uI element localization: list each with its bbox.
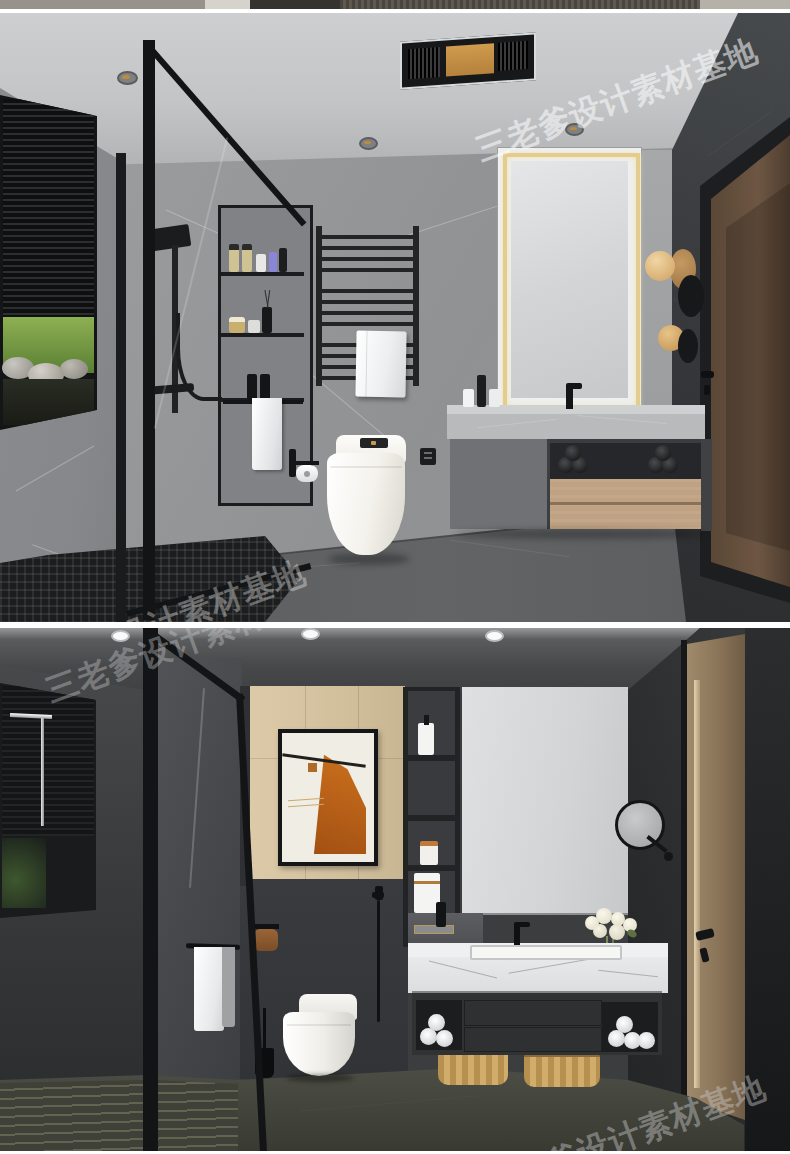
pump-top [424, 715, 429, 725]
vanity-counter [447, 405, 705, 441]
niche-shelf-board [221, 333, 304, 337]
radiator-bars [319, 289, 416, 333]
magnifying-mirror-mount [664, 852, 673, 861]
white-jar [248, 320, 260, 333]
violet-bottle [269, 252, 277, 272]
abstract-artwork [278, 729, 378, 866]
art-gold-line [288, 804, 324, 808]
art-orange-shape [282, 733, 366, 854]
sliver-dark-band [250, 0, 340, 9]
vanity-cabinet [412, 993, 662, 1055]
toilet-seat-seam [330, 466, 402, 468]
vanity-mirror [497, 147, 642, 412]
shower-glass-front-post [143, 628, 158, 1151]
door-pull-strip [694, 680, 700, 1088]
counter-soap-bottle [477, 375, 486, 407]
heater-grille [498, 41, 528, 71]
window-blinds [3, 99, 94, 323]
control-panel-light [371, 441, 376, 445]
sconce-black-plate-lower [678, 329, 698, 363]
towel-fold-line [365, 331, 367, 397]
black-bottle [279, 248, 287, 272]
rolled-towel [436, 1030, 453, 1047]
vanity-side-panel [701, 439, 712, 531]
sliver-grate [340, 0, 700, 9]
cabinet-left-niche [416, 1000, 462, 1050]
radiator-towel [355, 331, 406, 398]
window-rock [60, 359, 88, 379]
canister-copper-ring [414, 881, 440, 884]
toilet-control-panel [360, 438, 388, 448]
toilet-brush-handle [263, 1008, 266, 1050]
amber-bottle [242, 244, 252, 272]
flower-bouquet [585, 908, 643, 946]
shower-chrome-pipe [41, 718, 44, 826]
wicker-basket [524, 1054, 600, 1087]
amber-jar [420, 841, 438, 865]
vanity-shadow [455, 529, 705, 539]
sprayer-hose [377, 900, 380, 1022]
sink-basin [470, 945, 622, 960]
toilet-paper-roll [296, 465, 318, 482]
toilet-shadow [286, 1074, 354, 1082]
ledge-tray [414, 925, 454, 934]
drawer-seam [550, 502, 701, 505]
vanity-drawers [550, 479, 701, 529]
ledge-soap-bottle [436, 902, 446, 927]
reed-diffuser [262, 307, 272, 333]
downlight-bulb [364, 141, 371, 144]
downlight [485, 630, 504, 642]
socket-pin [424, 457, 432, 459]
vanity-cabinet-door [450, 439, 550, 529]
mirror-glass [511, 161, 628, 398]
door-inner-panel [726, 183, 790, 553]
art-gold-line [288, 798, 324, 802]
socket-pin [424, 452, 432, 454]
black-pump-bottle [260, 374, 270, 400]
basin-faucet-spout [514, 922, 530, 927]
rolled-towel [638, 1032, 655, 1049]
rolled-towel [428, 1014, 445, 1031]
wicker-basket [438, 1052, 508, 1085]
diffuser-stick [267, 290, 270, 308]
grate-grooves [0, 1080, 238, 1151]
downlight-bulb [122, 75, 130, 79]
sliver-cobble [700, 0, 790, 9]
flower-bloom [596, 908, 612, 924]
shower-floor-grate [0, 1080, 238, 1151]
black-pump-bottle [247, 374, 257, 400]
door-frame [681, 640, 687, 1096]
roll-core [304, 471, 310, 477]
window-green-view [2, 838, 46, 908]
toilet-seat-seam [287, 1024, 351, 1026]
art-copper-square [308, 763, 317, 772]
heater-lamp-panel [446, 43, 494, 76]
downlight [111, 630, 130, 642]
toilet-paper-roll [254, 929, 278, 951]
white-canister [256, 254, 266, 272]
render-top-bathroom: 三老爹设计素材基地 三老爹设计素材基地 [0, 13, 790, 622]
hanging-towel-shadow-fold [222, 947, 235, 1027]
shower-glass-front-post [143, 40, 155, 620]
shower-glass-rear-post [116, 153, 126, 622]
sconce-ball-light [645, 251, 675, 281]
basin-faucet [514, 924, 520, 945]
foreground-wall-edge [745, 628, 790, 1151]
sconce-black-plate [678, 275, 704, 317]
downlight [117, 71, 138, 85]
rolled-towel [616, 1016, 633, 1033]
vanity-open-niche [550, 439, 701, 479]
screenshot-canvas: 三老爹设计素材基地 三老爹设计素材基地 [0, 0, 790, 1154]
flower-leaf [626, 928, 638, 939]
door-handle [701, 371, 714, 378]
cabinet-drawer [464, 1027, 602, 1052]
vanity-mirror [462, 687, 628, 915]
downlight-bulb [570, 127, 577, 130]
counter-cup [489, 389, 500, 407]
amber-jar [229, 317, 245, 333]
hanging-towel [194, 947, 224, 1031]
hanging-towel [252, 398, 282, 470]
window [0, 91, 100, 433]
downlight [565, 123, 584, 136]
flower-bloom [609, 924, 625, 940]
radiator-bars [319, 235, 416, 279]
door-keyhole [704, 385, 710, 395]
sliver-light-band [205, 0, 250, 9]
downlight [359, 137, 378, 150]
wall-socket [420, 448, 436, 465]
counter-cup [463, 389, 474, 407]
cabinet-drawer [464, 1000, 602, 1026]
niche-shelf-board [221, 272, 304, 276]
handheld-sprayer-head [375, 886, 383, 900]
vanity-counter [408, 943, 668, 993]
white-pump-bottle [418, 723, 434, 755]
ceiling-bath-heater [400, 32, 536, 90]
render-bottom-bathroom: 三老爹设计素材基地 三老爹设计素材基地 [0, 628, 790, 1151]
downlight [301, 628, 320, 640]
shelf-cell [408, 761, 455, 815]
flower-bloom [593, 924, 607, 938]
rolled-black-towel [655, 445, 671, 461]
window-blinds [2, 686, 94, 836]
heater-grille [408, 47, 440, 79]
sliver-tile [0, 0, 205, 9]
amber-bottle [229, 244, 239, 272]
previous-image-sliver [0, 0, 790, 9]
shelf-column [403, 687, 460, 947]
cabinet-right-niche [602, 1002, 658, 1052]
rolled-black-towel [565, 445, 581, 461]
counter-front-face [408, 957, 668, 993]
basin-faucet-spout [566, 383, 582, 389]
